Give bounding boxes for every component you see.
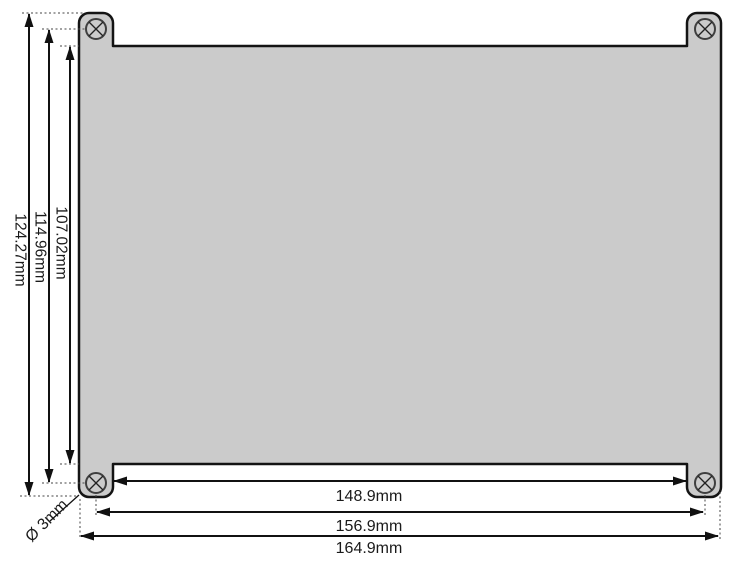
- arrowhead-right-icon: [673, 477, 687, 486]
- dim-label-hole-spacing-vertical: 114.96mm: [32, 211, 49, 283]
- hole-diameter-label: Ø 3mm: [22, 496, 71, 545]
- arrowhead-up-icon: [45, 29, 54, 43]
- dim-label-hole-spacing-horizontal: 156.9mm: [336, 518, 403, 535]
- arrowhead-up-icon: [66, 46, 75, 60]
- arrowhead-right-icon: [705, 532, 719, 541]
- dim-line-body-width: [113, 477, 687, 486]
- dim-line-hole-spacing-horizontal: [96, 508, 704, 517]
- arrowhead-right-icon: [690, 508, 704, 517]
- arrowhead-down-icon: [25, 482, 34, 496]
- dim-label-body-height: 107.02mm: [53, 206, 70, 279]
- panel-outline: [79, 13, 721, 497]
- dim-label-overall-width: 164.9mm: [336, 540, 403, 557]
- arrowhead-left-icon: [80, 532, 94, 541]
- dimension-drawing: 124.27mm 114.96mm 107.02mm 148.9mm 156.9…: [0, 0, 736, 565]
- dim-label-overall-height: 124.27mm: [12, 213, 29, 286]
- arrowhead-left-icon: [113, 477, 127, 486]
- arrowhead-down-icon: [66, 450, 75, 464]
- dim-label-body-width: 148.9mm: [336, 488, 403, 505]
- arrowhead-up-icon: [25, 13, 34, 27]
- arrowhead-down-icon: [45, 469, 54, 483]
- drawing-svg: 124.27mm 114.96mm 107.02mm 148.9mm 156.9…: [0, 0, 736, 565]
- arrowhead-left-icon: [96, 508, 110, 517]
